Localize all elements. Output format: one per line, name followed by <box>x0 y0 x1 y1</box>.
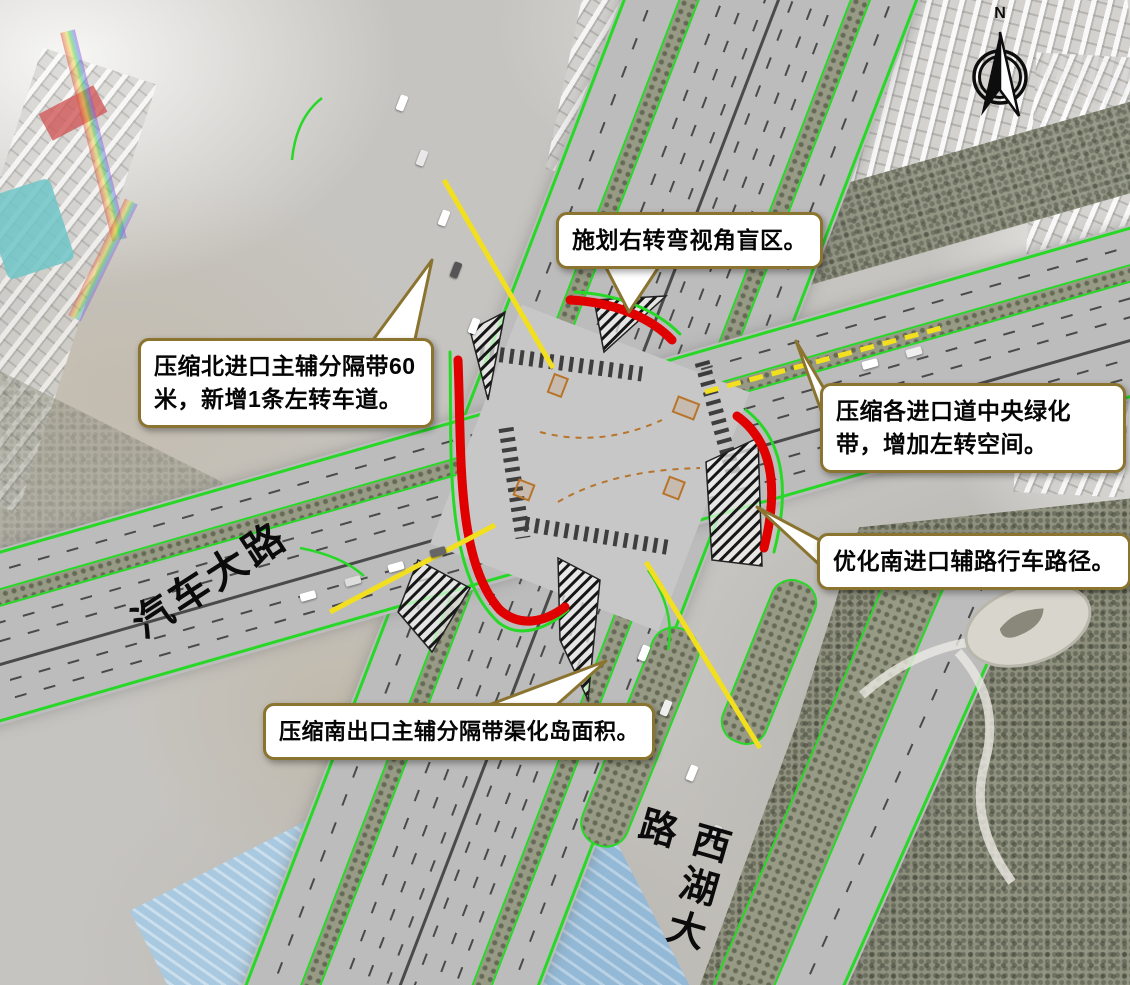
north-label: N <box>955 6 1045 22</box>
callout-right-turn-blind-zone: 施划右转弯视角盲区。 <box>556 212 823 269</box>
plan-markings-overlay <box>0 0 1130 985</box>
callout-text: 压缩各进口道中央绿化带，增加左转空间。 <box>836 398 1071 457</box>
callout-median-green-belt: 压缩各进口道中央绿化带，增加左转空间。 <box>820 383 1126 473</box>
north-arrow-icon <box>955 22 1045 122</box>
callout-text: 压缩北进口主辅分隔带60米，新增1条左转车道。 <box>154 353 416 412</box>
callout-text: 优化南进口辅路行车路径。 <box>833 548 1115 574</box>
aerial-intersection-plan: 施划右转弯视角盲区。 压缩北进口主辅分隔带60米，新增1条左转车道。 压缩各进口… <box>0 0 1130 985</box>
park-walkways <box>862 640 1062 882</box>
callout-text: 施划右转弯视角盲区。 <box>572 227 807 253</box>
callout-south-approach-aux: 优化南进口辅路行车路径。 <box>817 533 1130 590</box>
callout-text: 压缩南出口主辅分隔带渠化岛面积。 <box>279 719 639 744</box>
callout-south-exit-island: 压缩南出口主辅分隔带渠化岛面积。 <box>263 703 655 760</box>
north-arrow: N <box>955 6 1045 127</box>
callout-north-approach: 压缩北进口主辅分隔带60米，新增1条左转车道。 <box>138 338 434 428</box>
zebra-crosswalks <box>480 352 733 548</box>
